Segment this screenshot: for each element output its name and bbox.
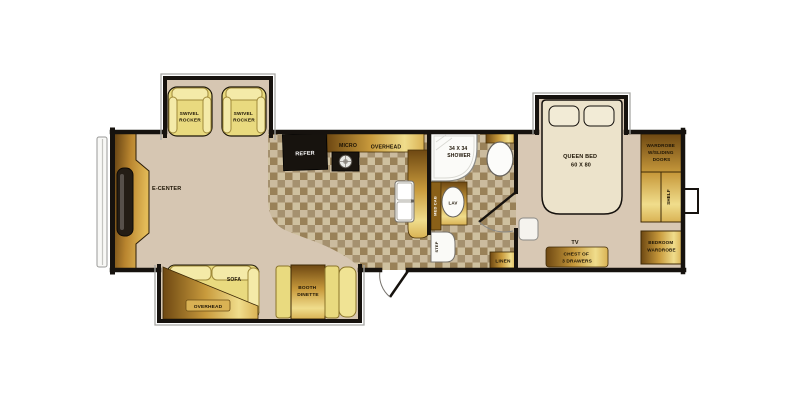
bedroom-step xyxy=(519,218,538,240)
swivel-rocker-1: SWIVEL ROCKER xyxy=(168,87,212,136)
door-swing-arc xyxy=(380,271,390,297)
step: STEP xyxy=(431,232,455,262)
med-cab: MED CAB xyxy=(431,182,441,230)
kitchen-sink xyxy=(395,181,414,222)
linen-cabinet: LINEN xyxy=(490,252,516,268)
booth-dinette: BOOTH DINETTE xyxy=(276,265,356,319)
burner-icon xyxy=(339,155,351,167)
rv-floorplan: E-CENTER SWIVEL ROCKER SWIVEL ROCKER OVE… xyxy=(0,0,800,400)
step-label: STEP xyxy=(434,241,439,252)
sofa-label: SOFA xyxy=(227,277,241,283)
tv-screen xyxy=(117,168,133,236)
micro-label: MICRO xyxy=(339,143,357,149)
linen-label: LINEN xyxy=(495,259,511,265)
kitchen-overhead-label: OVERHEAD xyxy=(371,145,402,151)
dinette-table xyxy=(291,265,325,319)
refrigerator: REFER xyxy=(282,133,327,171)
faucet-icon xyxy=(411,199,414,202)
wardrobe-sliding-doors: WARDROBE W/SLIDING DOORS SHELF xyxy=(641,134,682,222)
pillow xyxy=(584,106,614,126)
lav-label: LAV xyxy=(448,201,457,206)
entry-door xyxy=(380,271,408,297)
pillow xyxy=(549,106,579,126)
swivel-rocker-2: SWIVEL ROCKER xyxy=(222,87,266,136)
shower-label: 34 X 34 SHOWER xyxy=(447,146,471,159)
queen-bed: QUEEN BED 60 X 80 xyxy=(542,100,622,214)
shelf-label: SHELF xyxy=(666,189,671,205)
med-cab-label: MED CAB xyxy=(433,196,438,216)
lav-sink: LAV xyxy=(441,182,467,225)
refer-label: REFER xyxy=(295,151,315,158)
toilet xyxy=(486,133,514,176)
chest-of-drawers: CHEST OF 3 DRAWERS xyxy=(546,247,608,267)
tv-label: TV xyxy=(571,240,579,246)
e-center-label: E-CENTER xyxy=(152,186,181,192)
stove xyxy=(332,152,359,171)
bedroom-wardrobe: BEDROOM WARDROBE xyxy=(641,231,682,264)
front-cap xyxy=(97,137,107,267)
rear-bump xyxy=(684,189,698,213)
sofa-overhead-label: OVERHEAD xyxy=(194,304,223,310)
floorplan-page: E-CENTER SWIVEL ROCKER SWIVEL ROCKER OVE… xyxy=(0,0,800,400)
